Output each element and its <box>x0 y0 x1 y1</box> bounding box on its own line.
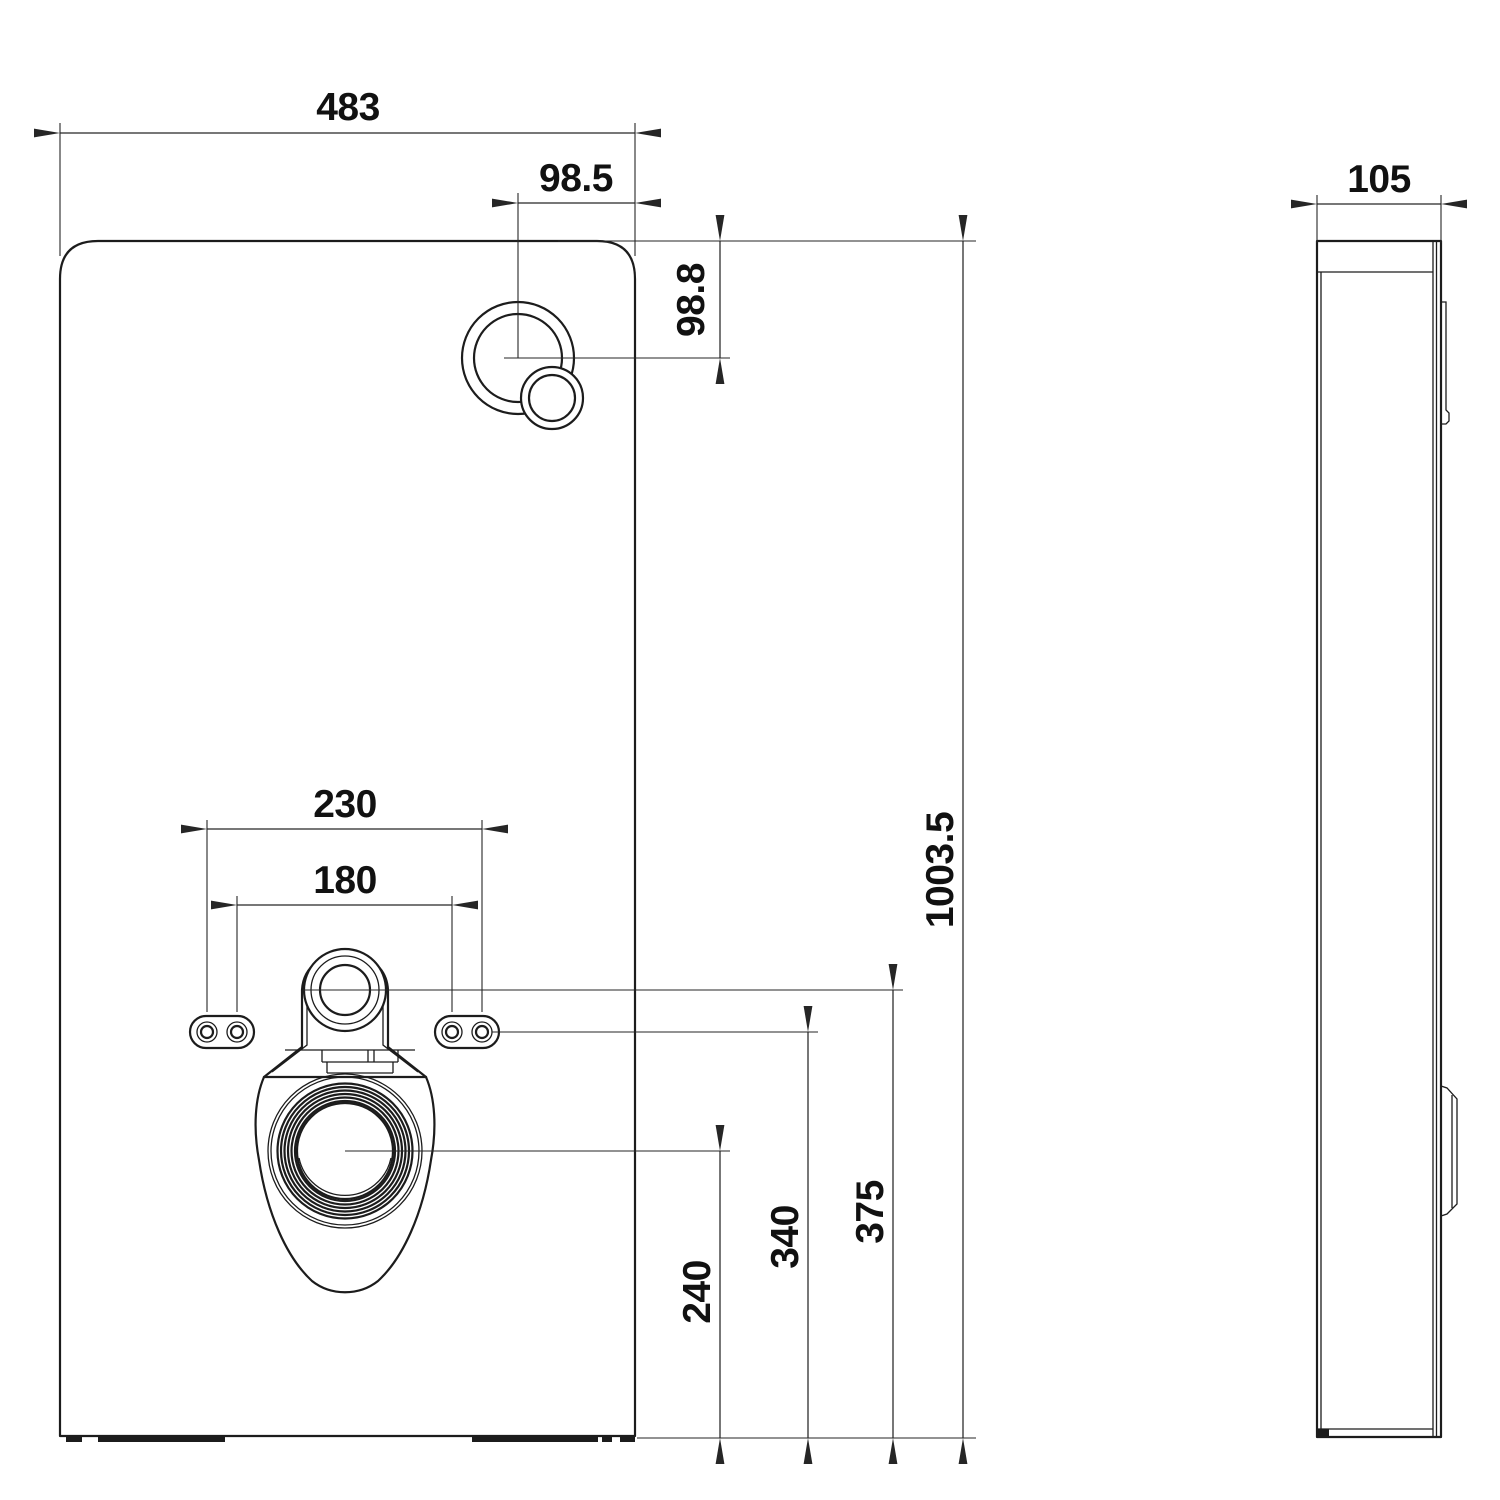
dim-holes-inner-label: 180 <box>313 859 377 902</box>
side-view <box>1316 241 1457 1437</box>
hole-bracket-outline <box>435 1016 499 1048</box>
dim-button-offset-y: 98.8 <box>670 241 720 358</box>
dim-height: 1003.5 <box>919 241 963 1438</box>
side-upper-tab <box>1441 302 1449 424</box>
hole-bracket-outline <box>190 1016 254 1048</box>
dim-holes-center-height: 340 <box>764 1032 808 1438</box>
side-foot <box>1316 1429 1329 1437</box>
panel-foot <box>472 1436 598 1442</box>
water-inlet-unit <box>264 949 426 1077</box>
dim-holes-outer-label: 230 <box>313 783 377 826</box>
side-panel-outline <box>1317 241 1441 1437</box>
leader-lines <box>303 241 976 1438</box>
clamp-line <box>322 1050 398 1062</box>
clamp-line <box>327 1062 393 1073</box>
dim-width-label: 483 <box>316 86 380 129</box>
flush-button-small-outer <box>521 367 583 429</box>
dim-inlet-center-height: 375 <box>849 990 893 1438</box>
clamp-line <box>368 1050 374 1062</box>
side-lower-bracket <box>1441 1086 1457 1216</box>
flush-button-unit <box>462 302 583 429</box>
dim-button-offset-y-label: 98.8 <box>670 263 713 337</box>
dim-inlet-height-label: 375 <box>849 1180 892 1244</box>
dim-depth: 105 <box>1317 158 1441 243</box>
dim-drain-center-height: 240 <box>676 1151 720 1438</box>
mounting-holes-left <box>190 1016 254 1048</box>
dim-drain-height-label: 240 <box>676 1260 719 1324</box>
panel-foot <box>602 1436 612 1442</box>
technical-drawing: 483 98.5 98.8 1003.5 230 180 <box>0 0 1500 1500</box>
dim-height-label: 1003.5 <box>919 812 962 928</box>
dim-depth-label: 105 <box>1347 158 1411 201</box>
dim-button-offset-x-label: 98.5 <box>539 157 613 200</box>
panel-foot <box>620 1436 635 1442</box>
dimensions: 483 98.5 98.8 1003.5 230 180 <box>60 86 1441 1438</box>
panel-foot <box>98 1436 225 1442</box>
front-view <box>60 241 635 1442</box>
mounting-holes-right <box>435 1016 499 1048</box>
panel-foot <box>66 1436 82 1442</box>
dim-holes-height-label: 340 <box>764 1205 807 1269</box>
drain-outlet-unit <box>256 1050 435 1292</box>
